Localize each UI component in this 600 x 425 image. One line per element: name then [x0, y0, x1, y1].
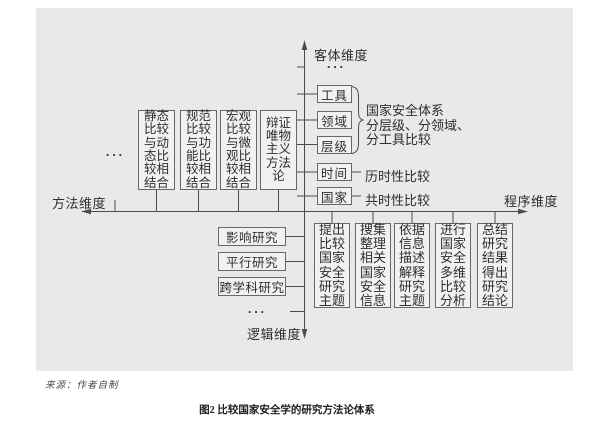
- figure-caption: 图2 比较国家安全学的研究方法论体系: [0, 402, 574, 417]
- axes-and-connectors: [0, 0, 600, 425]
- method-box-dialectical-materialism: 辩证唯物主义方法论: [260, 110, 297, 190]
- diachronic-annotation: 历时性比较: [365, 166, 430, 185]
- object-box-country: 国家: [317, 187, 352, 205]
- group-brace: [352, 87, 364, 154]
- logic-ellipsis: ···: [243, 304, 271, 320]
- synchronic-annotation: 共时性比较: [365, 190, 430, 209]
- method-box-normative-functional: 规范比较与功能比较相结合: [180, 110, 217, 190]
- method-box-static-dynamic: 静态比较与动态比较相结合: [138, 110, 175, 190]
- axis-label-procedure: 程序维度: [504, 191, 558, 210]
- logic-box-interdisciplinary: 跨学科研究: [218, 277, 286, 296]
- object-box-time: 时间: [317, 163, 352, 181]
- arrow-down-icon: [302, 329, 308, 339]
- object-box-level: 层级: [317, 136, 352, 154]
- procedure-box-topic: 提出比较国家安全研究主题: [314, 223, 350, 308]
- group-annotation-line3: 分工具比较: [366, 129, 431, 148]
- object-box-tools: 工具: [317, 85, 352, 103]
- arrow-up-icon: [302, 40, 308, 50]
- logic-box-parallel: 平行研究: [218, 252, 286, 271]
- method-box-macro-micro: 宏观比较与微观比较相结合: [220, 110, 257, 190]
- procedure-box-collect: 搜集整理相关国家安全信息: [355, 223, 391, 308]
- logic-box-influence: 影响研究: [218, 227, 286, 246]
- axis-label-method: 方法维度: [52, 193, 106, 212]
- figure-page: 客体维度 程序维度 方法维度 逻辑维度 ··· ··· ··· 工具 领域 层级…: [0, 0, 600, 425]
- method-ellipsis: ···: [101, 147, 129, 163]
- axis-label-logic: 逻辑维度: [247, 324, 301, 343]
- procedure-box-conclude: 总结研究结果得出研究结论: [477, 223, 513, 308]
- procedure-box-compare: 进行国家安全多维比较分析: [435, 223, 471, 308]
- object-ellipsis: ···: [322, 59, 350, 75]
- source-note: 来源：作者自制: [45, 377, 119, 391]
- procedure-box-describe: 依据信息描述解释研究主题: [394, 223, 430, 308]
- object-box-domain: 领域: [317, 111, 352, 129]
